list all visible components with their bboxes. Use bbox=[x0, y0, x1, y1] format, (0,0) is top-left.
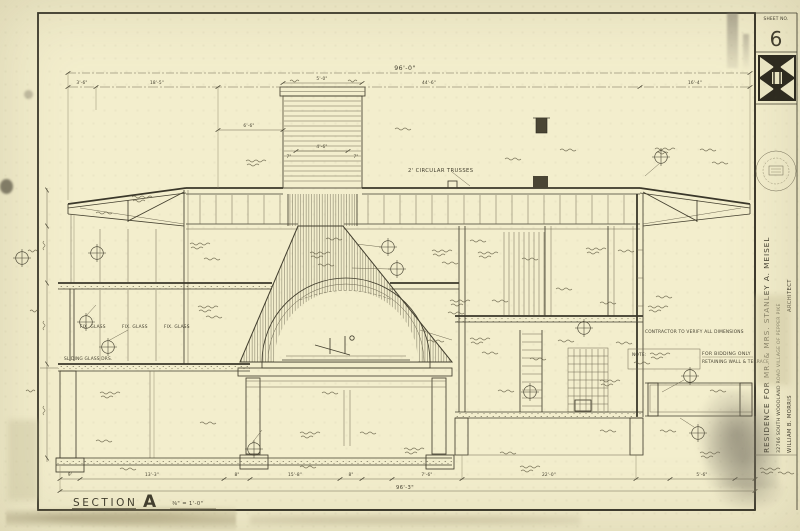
roof-curb bbox=[448, 181, 457, 188]
dim-segment: 7'-6" bbox=[421, 472, 432, 478]
dim-segment: 13'-3" bbox=[145, 472, 159, 478]
sheet-number: 6 bbox=[770, 27, 783, 51]
project-address: 32766 SOUTH WOODLAND ROAD VILLAGE OF PEP… bbox=[776, 303, 782, 453]
dimension-lines-top: 96'-0" 3'-6" 18'-5" 44'-6" 16'-4" bbox=[66, 65, 753, 200]
retaining-note: RETAINING WALL & TERRACE bbox=[702, 359, 769, 365]
chimney-width-dim: 4'-6" bbox=[316, 144, 327, 150]
overall-dim-bottom: 96'-3" bbox=[396, 485, 414, 491]
pier bbox=[432, 378, 446, 454]
section-letter: A bbox=[143, 492, 157, 512]
section-label: SECTION bbox=[73, 497, 137, 509]
dim-segment: 22'-0" bbox=[542, 472, 556, 478]
right-wing bbox=[455, 194, 643, 455]
architect-name: WILLIAM B. MORRIS bbox=[787, 395, 793, 453]
sheet-number-box: SHEET NO. 6 bbox=[764, 16, 789, 51]
fixed-glass-label: FIX. GLASS bbox=[80, 324, 106, 330]
faint-pencil-note bbox=[760, 468, 780, 474]
chimney-breast bbox=[288, 194, 357, 226]
terrace-fill bbox=[650, 385, 752, 412]
architect-logo bbox=[758, 55, 796, 101]
blueprint-sheet: SHEET NO. 6 RESIDENCE FOR MR. & MRS. STA… bbox=[0, 0, 800, 531]
bidding-note: FOR BIDDING ONLY bbox=[702, 351, 751, 357]
title-block: SHEET NO. 6 RESIDENCE FOR MR. & MRS. STA… bbox=[755, 13, 797, 510]
sheet-border bbox=[38, 13, 755, 510]
chimney-top-dim: 5'-0" bbox=[316, 76, 327, 82]
dim-segment: 3'-6" bbox=[76, 80, 87, 86]
chimney-side-dim: 7" bbox=[286, 154, 291, 160]
fireplace bbox=[238, 226, 452, 376]
dimension-lines-bottom: 9' 13'-3" 8" 15'-8" 8" 7'-6" 22'-0" 5'-6… bbox=[58, 416, 758, 493]
section-title: SECTION A ⅜" = 1'-0" bbox=[72, 492, 216, 512]
roof-vent bbox=[533, 176, 548, 188]
foundation-wall bbox=[455, 418, 468, 455]
dim-segment: 15'-8" bbox=[288, 472, 302, 478]
dim-segment: 16'-4" bbox=[688, 80, 702, 86]
foundation-wall bbox=[630, 418, 643, 455]
faint-pencil-note bbox=[778, 472, 794, 474]
basement bbox=[56, 378, 454, 472]
chimney-side-dim: 7" bbox=[353, 154, 358, 160]
architect-seal bbox=[756, 151, 796, 191]
fixed-glass-label: FIX. GLASS bbox=[164, 324, 190, 330]
incinerator-flue bbox=[536, 118, 547, 133]
foundation-wall bbox=[60, 371, 76, 458]
dim-segment: 18'-5" bbox=[150, 80, 164, 86]
dimension-line-left bbox=[43, 188, 49, 462]
fixture bbox=[575, 400, 591, 411]
dim-segment: 5'-6" bbox=[696, 472, 707, 478]
hearth bbox=[262, 362, 430, 368]
verify-note: CONTRACTOR TO VERIFY ALL DIMENSIONS bbox=[645, 329, 744, 335]
dim-segment: 8" bbox=[348, 472, 353, 478]
architect-title: ARCHITECT bbox=[787, 279, 793, 312]
overall-dim-top: 96'-0" bbox=[394, 65, 416, 72]
dim-segment: 44'-6" bbox=[422, 80, 436, 86]
dim-segment: 9' bbox=[68, 472, 72, 478]
trusses-label: 2' CIRCULAR TRUSSES bbox=[408, 168, 473, 174]
sliding-doors-label: SLIDING GLASS DRS. bbox=[64, 356, 112, 362]
chimney-offset-dim: 6'-6" bbox=[243, 123, 254, 129]
project-title: RESIDENCE FOR MR. & MRS. STANLEY A. MEIS… bbox=[762, 237, 771, 453]
section-scale: ⅜" = 1'-0" bbox=[172, 501, 203, 507]
terrace-retaining-wall: NOTE: FOR BIDDING ONLY RETAINING WALL & … bbox=[628, 329, 769, 416]
note-label: NOTE: bbox=[632, 352, 646, 358]
sheet-no-label: SHEET NO. bbox=[764, 16, 789, 22]
title-block-text: RESIDENCE FOR MR. & MRS. STANLEY A. MEIS… bbox=[762, 237, 793, 453]
note-box bbox=[628, 349, 700, 369]
fixed-glass-label: FIX. GLASS bbox=[122, 324, 148, 330]
section-drawing-svg: SHEET NO. 6 RESIDENCE FOR MR. & MRS. STA… bbox=[0, 0, 800, 531]
dim-segment: 8" bbox=[234, 472, 239, 478]
